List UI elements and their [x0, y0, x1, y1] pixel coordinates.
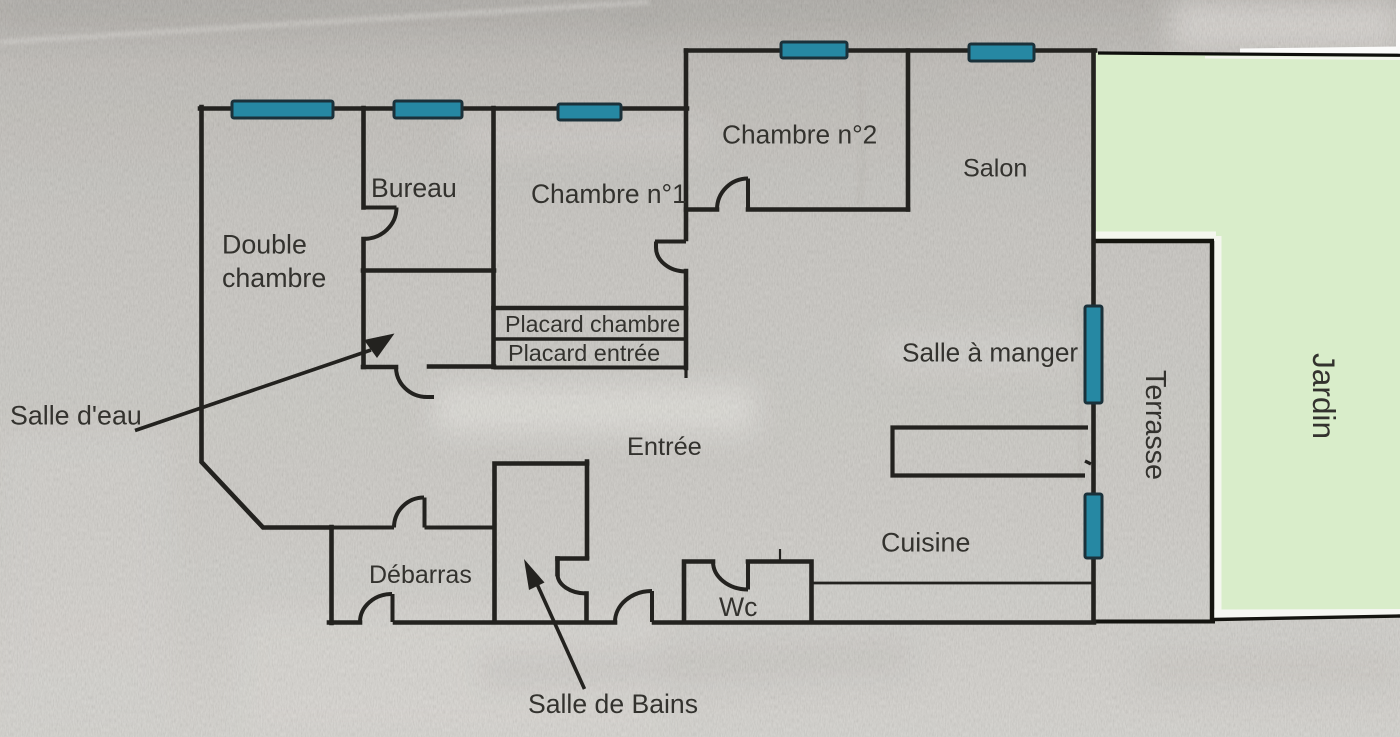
svg-text:Wc: Wc	[719, 592, 757, 622]
svg-text:Placard entrée: Placard entrée	[508, 340, 660, 366]
svg-text:Terrasse: Terrasse	[1139, 370, 1171, 480]
svg-text:Chambre n°1: Chambre n°1	[531, 179, 687, 209]
svg-text:Salon: Salon	[963, 155, 1027, 183]
svg-text:Salle d'eau: Salle d'eau	[10, 401, 142, 431]
svg-text:Salle de Bains: Salle de Bains	[528, 689, 698, 719]
svg-text:Double: Double	[222, 230, 307, 260]
svg-text:chambre: chambre	[222, 263, 326, 293]
svg-text:Jardin: Jardin	[1306, 353, 1342, 439]
svg-text:Salle à manger: Salle à manger	[902, 338, 1078, 368]
svg-text:Bureau: Bureau	[371, 173, 457, 203]
svg-text:Chambre n°2: Chambre n°2	[722, 120, 877, 150]
svg-text:Placard chambre: Placard chambre	[505, 311, 680, 337]
svg-text:Entrée: Entrée	[627, 433, 702, 461]
svg-text:Cuisine: Cuisine	[881, 528, 970, 558]
svg-text:Débarras: Débarras	[369, 561, 472, 589]
